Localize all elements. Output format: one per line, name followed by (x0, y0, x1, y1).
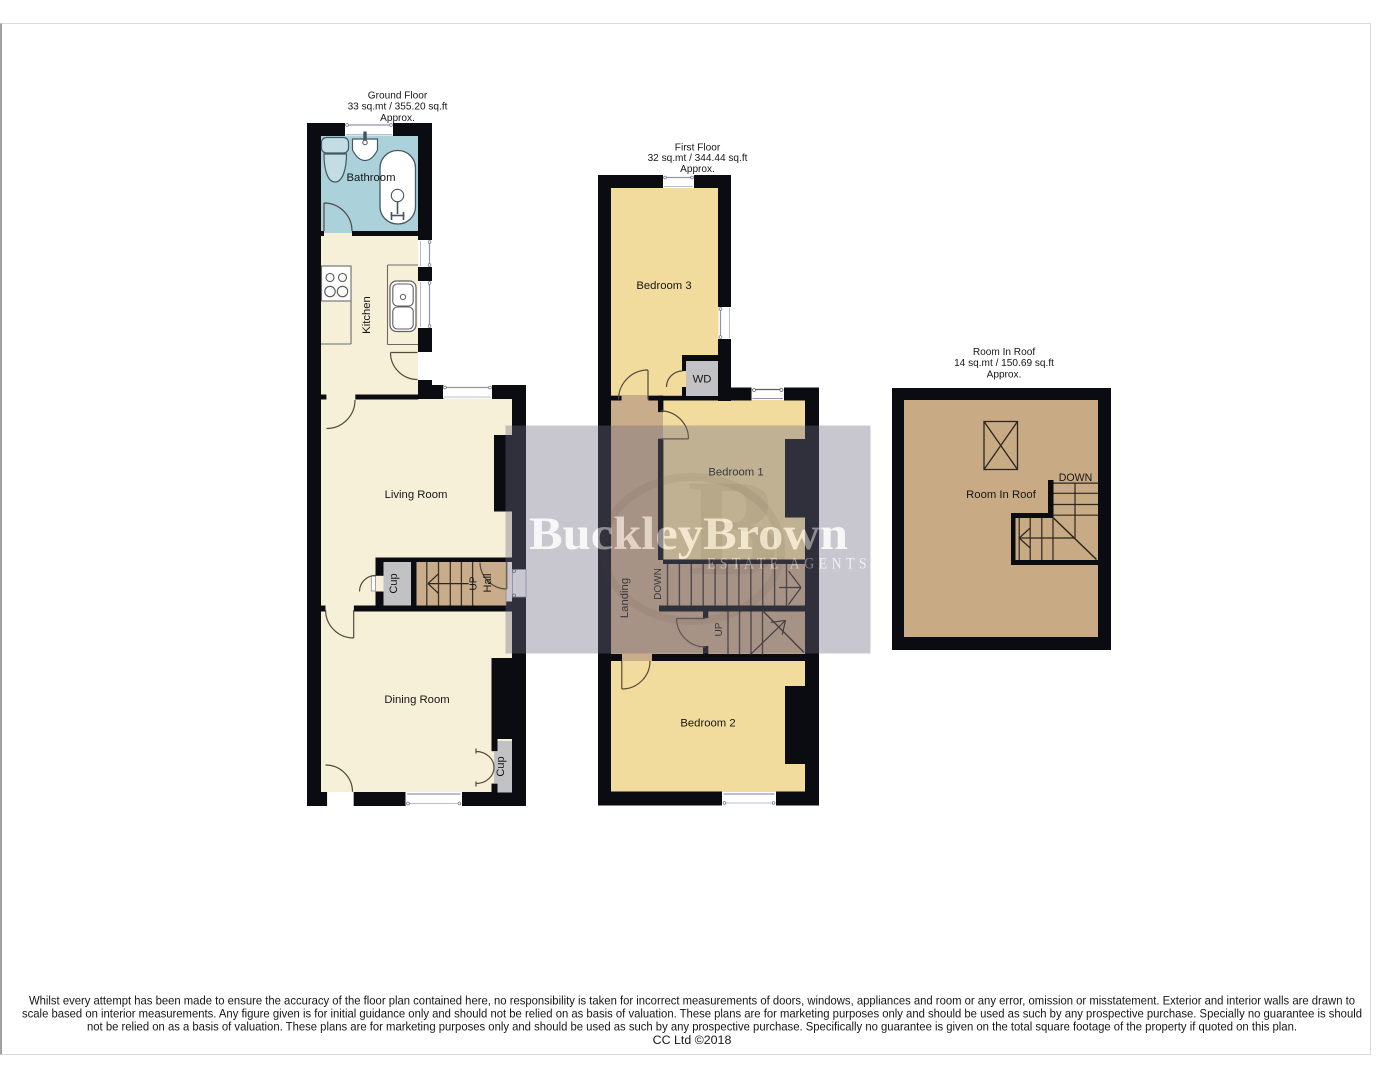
svg-text:WD: WD (693, 374, 712, 386)
svg-text:Kitchen: Kitchen (361, 296, 373, 334)
svg-text:First Floor: First Floor (675, 142, 721, 153)
svg-text:scale based on interior measur: scale based on interior measurements. An… (22, 1007, 1362, 1021)
svg-text:DOWN: DOWN (1059, 472, 1093, 484)
svg-text:32 sq.mt / 344.44 sq.ft: 32 sq.mt / 344.44 sq.ft (648, 153, 748, 164)
svg-text:14 sq.mt / 150.69 sq.ft: 14 sq.mt / 150.69 sq.ft (954, 358, 1054, 369)
svg-text:Whilst every attempt has been: Whilst every attempt has been made to en… (29, 994, 1355, 1008)
svg-text:not be relied on as a basis of: not be relied on as a basis of valuation… (87, 1020, 1297, 1034)
svg-text:Dining Room: Dining Room (384, 694, 449, 706)
svg-text:Room In Roof: Room In Roof (973, 347, 1035, 358)
svg-text:UP: UP (469, 576, 480, 590)
svg-text:Approx.: Approx. (987, 369, 1022, 380)
svg-text:Bathroom: Bathroom (347, 172, 396, 184)
svg-text:Bedroom 3: Bedroom 3 (636, 280, 691, 292)
svg-text:Hall: Hall (482, 574, 494, 593)
svg-text:Living Room: Living Room (385, 489, 448, 501)
svg-text:Ground Floor: Ground Floor (368, 91, 428, 102)
svg-text:Cup: Cup (495, 756, 507, 776)
svg-text:ESTATE AGENTS: ESTATE AGENTS (707, 556, 871, 573)
svg-text:Approx.: Approx. (380, 113, 415, 124)
svg-text:Cup: Cup (388, 573, 400, 593)
svg-text:Room In Roof: Room In Roof (966, 489, 1037, 501)
svg-text:33 sq.mt / 355.20 sq.ft: 33 sq.mt / 355.20 sq.ft (348, 102, 448, 113)
svg-text:CC Ltd ©2018: CC Ltd ©2018 (653, 1033, 732, 1047)
svg-text:Approx.: Approx. (680, 164, 715, 175)
svg-text:BuckleyBrown: BuckleyBrown (529, 508, 848, 560)
svg-text:Bedroom 2: Bedroom 2 (680, 718, 735, 730)
